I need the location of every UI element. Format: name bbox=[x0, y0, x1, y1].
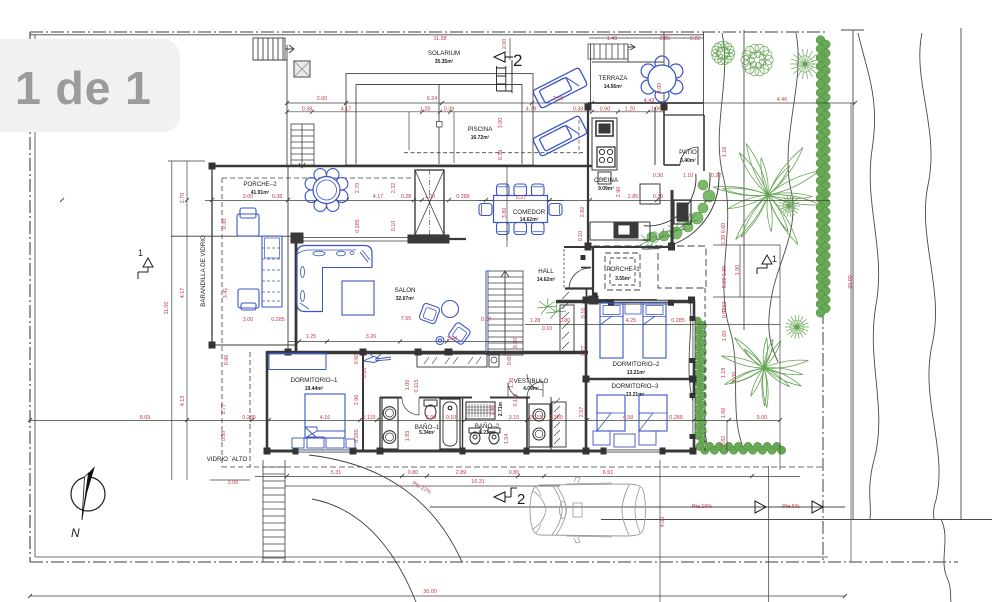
svg-text:2.00: 2.00 bbox=[502, 39, 508, 50]
svg-text:3.00: 3.00 bbox=[243, 317, 254, 323]
svg-text:BAÑO–2: BAÑO–2 bbox=[475, 423, 500, 430]
svg-text:1 de 1: 1 de 1 bbox=[15, 62, 152, 114]
svg-text:0.115: 0.115 bbox=[513, 393, 519, 406]
svg-text:9.09m²: 9.09m² bbox=[598, 186, 614, 192]
svg-text:4.17: 4.17 bbox=[341, 106, 352, 112]
svg-text:2.85: 2.85 bbox=[660, 36, 671, 42]
svg-text:1.54: 1.54 bbox=[504, 434, 510, 445]
svg-text:3.55m²: 3.55m² bbox=[615, 276, 631, 282]
svg-text:3.00: 3.00 bbox=[498, 118, 504, 129]
svg-text:2.70: 2.70 bbox=[355, 183, 361, 194]
svg-text:7.55: 7.55 bbox=[401, 316, 412, 322]
svg-text:13.21m²: 13.21m² bbox=[626, 392, 645, 398]
svg-text:0.39: 0.39 bbox=[444, 106, 455, 112]
svg-text:Pte.5%: Pte.5% bbox=[782, 504, 800, 510]
svg-text:0.285: 0.285 bbox=[355, 219, 361, 233]
svg-text:4.25: 4.25 bbox=[626, 318, 637, 324]
svg-text:4.17: 4.17 bbox=[373, 194, 384, 200]
svg-text:4.46: 4.46 bbox=[777, 97, 788, 103]
svg-text:1.10: 1.10 bbox=[683, 173, 694, 179]
svg-text:DORMITORIO–2: DORMITORIO–2 bbox=[613, 361, 661, 368]
svg-text:0.285: 0.285 bbox=[354, 429, 360, 443]
svg-text:0.38: 0.38 bbox=[302, 106, 313, 112]
svg-text:PORCHE–1: PORCHE–1 bbox=[606, 266, 640, 273]
svg-text:2: 2 bbox=[513, 51, 522, 70]
svg-text:4.43: 4.43 bbox=[644, 98, 655, 104]
svg-text:COCINA: COCINA bbox=[594, 177, 619, 184]
svg-text:BARANDILLA DE VIDRIO: BARANDILLA DE VIDRIO bbox=[200, 235, 207, 307]
svg-text:0.10: 0.10 bbox=[362, 368, 368, 379]
svg-text:1.28: 1.28 bbox=[420, 106, 431, 112]
svg-text:0.39: 0.39 bbox=[498, 150, 504, 161]
svg-text:0.38: 0.38 bbox=[272, 194, 283, 200]
svg-text:3.80: 3.80 bbox=[502, 208, 508, 219]
svg-text:0.80: 0.80 bbox=[560, 318, 571, 324]
svg-text:2.96: 2.96 bbox=[490, 405, 496, 416]
svg-text:32.67m²: 32.67m² bbox=[396, 296, 415, 302]
svg-text:0.115: 0.115 bbox=[414, 379, 420, 392]
svg-text:2.70: 2.70 bbox=[180, 193, 186, 204]
svg-text:0.38: 0.38 bbox=[222, 219, 228, 230]
svg-text:0.38: 0.38 bbox=[221, 431, 227, 442]
svg-text:Pte.16%: Pte.16% bbox=[692, 504, 713, 510]
svg-text:0.82: 0.82 bbox=[722, 302, 728, 313]
svg-text:2.59: 2.59 bbox=[553, 96, 564, 102]
svg-text:5.27: 5.27 bbox=[516, 195, 527, 201]
svg-text:4.17: 4.17 bbox=[180, 288, 186, 299]
svg-text:1.00: 1.00 bbox=[425, 194, 436, 200]
svg-text:N: N bbox=[71, 526, 80, 540]
svg-text:DORMITORIO–1: DORMITORIO–1 bbox=[291, 377, 339, 384]
svg-text:2.90: 2.90 bbox=[426, 415, 437, 421]
svg-text:5.31: 5.31 bbox=[331, 470, 342, 476]
svg-text:8.69: 8.69 bbox=[140, 415, 151, 421]
svg-text:SOLARIUM: SOLARIUM bbox=[428, 50, 460, 57]
svg-text:1.25: 1.25 bbox=[306, 334, 317, 340]
svg-text:20.00: 20.00 bbox=[848, 275, 854, 289]
svg-text:0.115: 0.115 bbox=[362, 415, 375, 421]
svg-text:16.31: 16.31 bbox=[471, 479, 485, 485]
svg-text:6.51: 6.51 bbox=[603, 470, 614, 476]
svg-text:13.21m²: 13.21m² bbox=[627, 370, 646, 376]
svg-text:HALL: HALL bbox=[538, 268, 554, 275]
svg-text:6.24: 6.24 bbox=[427, 96, 438, 102]
svg-text:2.90: 2.90 bbox=[616, 187, 622, 198]
svg-text:VESTIBULO: VESTIBULO bbox=[514, 378, 549, 385]
svg-text:0.285: 0.285 bbox=[242, 415, 256, 421]
svg-text:0.07: 0.07 bbox=[481, 317, 492, 323]
svg-text:19.44m²: 19.44m² bbox=[305, 386, 324, 392]
svg-text:1: 1 bbox=[138, 248, 143, 258]
svg-text:5.00: 5.00 bbox=[757, 415, 768, 421]
svg-text:3.40m²: 3.40m² bbox=[680, 158, 696, 164]
svg-text:1.18: 1.18 bbox=[721, 368, 727, 379]
svg-text:2.00: 2.00 bbox=[228, 480, 239, 486]
svg-text:DORMITORIO–3: DORMITORIO–3 bbox=[612, 383, 660, 390]
svg-text:2.77: 2.77 bbox=[221, 404, 227, 415]
svg-text:0.30: 0.30 bbox=[653, 194, 664, 200]
svg-text:0.115: 0.115 bbox=[529, 415, 542, 421]
svg-text:PISCINA: PISCINA bbox=[468, 126, 494, 133]
svg-text:16.72m²: 16.72m² bbox=[471, 135, 490, 141]
svg-text:0.30: 0.30 bbox=[653, 173, 664, 179]
svg-text:3.26: 3.26 bbox=[366, 334, 377, 340]
svg-text:COMEDOR: COMEDOR bbox=[513, 209, 546, 216]
svg-text:14.62m²: 14.62m² bbox=[520, 217, 539, 223]
svg-text:1: 1 bbox=[772, 254, 777, 264]
svg-text:3.00: 3.00 bbox=[243, 194, 254, 200]
svg-text:2: 2 bbox=[517, 491, 525, 508]
svg-text:0.10: 0.10 bbox=[446, 415, 457, 421]
svg-text:0.60: 0.60 bbox=[507, 355, 513, 366]
svg-text:4.13: 4.13 bbox=[180, 396, 186, 407]
svg-text:5.23m²: 5.23m² bbox=[479, 430, 495, 436]
svg-text:2.71m: 2.71m bbox=[498, 401, 504, 416]
svg-text:0.10: 0.10 bbox=[391, 221, 397, 232]
svg-text:1.90: 1.90 bbox=[735, 265, 741, 276]
svg-text:SALON: SALON bbox=[395, 287, 416, 294]
svg-text:TERRAZA: TERRAZA bbox=[599, 75, 629, 82]
svg-text:2.85: 2.85 bbox=[628, 194, 639, 200]
svg-text:4.00: 4.00 bbox=[657, 83, 663, 94]
svg-text:41.91m²: 41.91m² bbox=[251, 190, 270, 196]
svg-text:2.60: 2.60 bbox=[317, 96, 328, 102]
svg-text:4.00: 4.00 bbox=[660, 517, 666, 528]
svg-text:0.96: 0.96 bbox=[224, 355, 230, 366]
svg-text:1.30: 1.30 bbox=[509, 378, 515, 389]
svg-text:0.285: 0.285 bbox=[669, 415, 683, 421]
svg-text:2.57: 2.57 bbox=[579, 407, 585, 418]
svg-text:PORCHE–2: PORCHE–2 bbox=[243, 181, 277, 188]
svg-text:0.80: 0.80 bbox=[408, 470, 419, 476]
svg-text:4.79: 4.79 bbox=[526, 106, 537, 112]
svg-text:2.89: 2.89 bbox=[456, 470, 467, 476]
svg-text:3.24: 3.24 bbox=[447, 336, 458, 342]
svg-text:0.10: 0.10 bbox=[578, 231, 584, 242]
svg-text:1.60: 1.60 bbox=[721, 408, 727, 419]
svg-text:0.90: 0.90 bbox=[600, 106, 611, 112]
svg-text:PATIO: PATIO bbox=[679, 149, 697, 156]
svg-text:0.38: 0.38 bbox=[573, 106, 584, 112]
svg-text:14.56m²: 14.56m² bbox=[604, 84, 623, 90]
svg-text:2.96: 2.96 bbox=[354, 395, 360, 406]
svg-text:0.285: 0.285 bbox=[671, 318, 685, 324]
svg-text:3.15: 3.15 bbox=[509, 415, 520, 421]
svg-text:1.28: 1.28 bbox=[530, 318, 541, 324]
svg-text:1.40: 1.40 bbox=[607, 36, 618, 42]
svg-text:4.16: 4.16 bbox=[320, 415, 331, 421]
svg-text:1.00: 1.00 bbox=[405, 380, 411, 391]
svg-text:4.58: 4.58 bbox=[623, 415, 634, 421]
svg-text:5.34m²: 5.34m² bbox=[419, 430, 435, 436]
svg-text:0.82: 0.82 bbox=[721, 436, 727, 447]
svg-text:1.16: 1.16 bbox=[722, 147, 728, 158]
svg-text:0.10: 0.10 bbox=[513, 338, 519, 349]
svg-text:0.285: 0.285 bbox=[271, 317, 285, 323]
svg-text:0.22 1.30: 0.22 1.30 bbox=[722, 266, 728, 288]
svg-text:6.00: 6.00 bbox=[732, 372, 738, 383]
svg-text:30.00: 30.00 bbox=[423, 589, 437, 595]
svg-text:0.28: 0.28 bbox=[401, 194, 412, 200]
svg-text:VIDRIO ´ALTO: VIDRIO ´ALTO bbox=[207, 456, 248, 463]
svg-text:1.20: 1.20 bbox=[625, 106, 636, 112]
svg-text:0.10: 0.10 bbox=[542, 326, 553, 332]
svg-text:2.77: 2.77 bbox=[581, 346, 587, 357]
svg-text:0.380: 0.380 bbox=[549, 415, 563, 421]
svg-text:3.41: 3.41 bbox=[223, 288, 229, 299]
svg-text:35.35m²: 35.35m² bbox=[435, 59, 454, 65]
svg-text:0.38 0.60: 0.38 0.60 bbox=[721, 223, 727, 245]
svg-text:0.22: 0.22 bbox=[690, 36, 701, 42]
svg-text:1.60: 1.60 bbox=[722, 331, 728, 342]
svg-text:0.60: 0.60 bbox=[354, 354, 360, 365]
svg-text:11.38: 11.38 bbox=[433, 36, 446, 42]
svg-text:2.82: 2.82 bbox=[580, 207, 586, 218]
svg-text:11.00: 11.00 bbox=[164, 301, 170, 314]
svg-text:0.80: 0.80 bbox=[509, 470, 520, 476]
svg-text:14.62m²: 14.62m² bbox=[537, 277, 556, 283]
svg-text:1.06: 1.06 bbox=[651, 106, 662, 112]
svg-text:2.32: 2.32 bbox=[391, 183, 397, 194]
svg-text:1.83: 1.83 bbox=[405, 431, 411, 442]
svg-text:4.09m²: 4.09m² bbox=[523, 386, 539, 392]
svg-text:0.10: 0.10 bbox=[581, 308, 587, 319]
svg-text:0.285: 0.285 bbox=[456, 194, 470, 200]
svg-text:0.22: 0.22 bbox=[711, 173, 722, 179]
